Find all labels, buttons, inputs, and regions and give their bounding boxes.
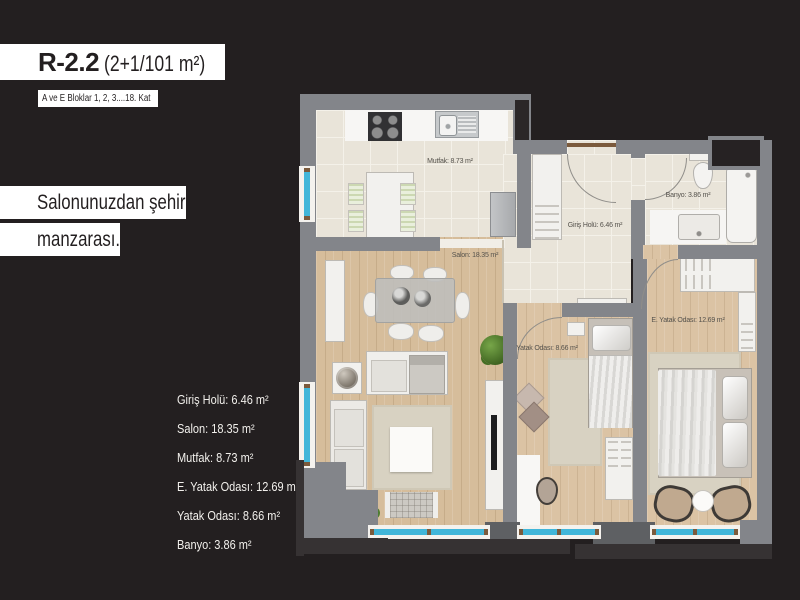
area-salon: Salon: 18.35 m² xyxy=(177,415,255,444)
area-yatak-odasi: Yatak Odası: 8.66 m² xyxy=(177,502,280,531)
wardrobe-rail xyxy=(685,275,713,289)
shaft xyxy=(708,136,764,170)
kitchen-chair xyxy=(400,183,416,205)
tagline-line1: Salonunuzdan şehir xyxy=(0,186,186,219)
tv xyxy=(491,415,497,470)
sofa-cushion xyxy=(371,360,407,392)
bathroom-vanity xyxy=(650,210,726,244)
dining-chair xyxy=(418,325,444,342)
wardrobe-shelves xyxy=(608,441,618,467)
master-bed-duvet xyxy=(658,370,716,476)
kitchen-chair xyxy=(348,183,364,205)
bedroom-wardrobe xyxy=(605,437,633,500)
coffee-table xyxy=(390,427,432,472)
kitchen-sink xyxy=(435,111,479,138)
window xyxy=(299,166,315,222)
window-glass xyxy=(304,168,310,220)
hall-salon-divider xyxy=(502,240,504,303)
tagline-line1-text: Salonunuzdan şehir xyxy=(37,186,186,219)
wall xyxy=(740,520,772,545)
wall xyxy=(517,154,531,248)
dining-chair xyxy=(388,323,414,340)
room-label-salon: Salon: 18.35 m² xyxy=(415,252,535,259)
sofa xyxy=(366,351,448,395)
plan-shadow xyxy=(330,539,570,554)
window xyxy=(517,525,601,539)
sink-drainer xyxy=(458,116,476,133)
decor-sphere xyxy=(336,367,358,389)
area-mutfak: Mutfak: 8.73 m² xyxy=(177,444,253,473)
plan-spec: (2+1/101 m²) xyxy=(104,46,205,82)
wardrobe-shelves xyxy=(621,441,631,467)
kitchen-chair xyxy=(348,210,364,232)
master-bedroom-door-opening xyxy=(643,245,678,259)
room-label-e-yatak-odasi: E. Yatak Odası: 12.69 m² xyxy=(628,317,748,324)
kitchen-chair xyxy=(400,210,416,232)
window-glass xyxy=(370,529,488,535)
window-glass xyxy=(519,529,599,535)
blocks-floors-text: A ve E Bloklar 1, 2, 3....18. Kat xyxy=(42,90,151,107)
balcony-step xyxy=(302,490,378,542)
sideboard xyxy=(325,260,345,342)
window xyxy=(650,525,740,539)
wall xyxy=(757,140,772,542)
wall xyxy=(316,237,440,251)
bed-pillow xyxy=(722,422,748,468)
bed-duvet xyxy=(589,355,632,428)
wall xyxy=(593,522,655,544)
plan-title: R-2.2 (2+1/101 m²) xyxy=(0,44,225,80)
nightstand xyxy=(567,322,585,336)
bed-pillow xyxy=(722,376,748,420)
room-label-yatak-odasi: Yatak Odası: 8.66 m² xyxy=(487,345,607,352)
side-table xyxy=(332,362,362,394)
corner-sofa-cushion xyxy=(334,409,364,447)
wall xyxy=(503,303,517,544)
bathtub xyxy=(726,165,757,243)
table-bowl xyxy=(414,290,431,307)
stove xyxy=(368,112,402,141)
tagline-line2: manzarası. xyxy=(0,223,120,256)
room-label-giris-holu: Giriş Holü: 6.46 m² xyxy=(535,222,655,229)
table-bowl xyxy=(392,287,410,305)
page: { "background": "#231f20", "header": { "… xyxy=(0,0,800,600)
bedroom-bed xyxy=(588,318,633,428)
plan-shadow xyxy=(575,544,772,559)
room-label-mutfak: Mutfak: 8.73 m² xyxy=(390,158,510,165)
sofa-chaise xyxy=(409,355,445,394)
area-e-yatak-odasi: E. Yatak Odası: 12.69 m² xyxy=(177,473,299,502)
window-glass xyxy=(652,529,738,535)
area-banyo: Banyo: 3.86 m² xyxy=(177,531,252,560)
closet-shelves xyxy=(535,201,559,239)
entrance-door-leaf xyxy=(567,143,616,147)
tagline-line2-text: manzarası. xyxy=(37,223,120,256)
plan-code: R-2.2 xyxy=(38,47,99,77)
window xyxy=(299,382,315,468)
wardrobe-rail xyxy=(685,257,713,271)
round-table xyxy=(692,490,714,512)
window xyxy=(368,525,490,539)
room-label-banyo: Banyo: 3.86 m² xyxy=(628,192,748,199)
area-giris-holu: Giriş Holü: 6.46 m² xyxy=(177,386,269,415)
ottoman-bench xyxy=(385,492,438,518)
sink-bowl xyxy=(439,115,457,136)
kitchen-threshold xyxy=(440,239,505,248)
dining-chair xyxy=(455,292,470,319)
wall xyxy=(306,94,521,110)
fridge xyxy=(490,192,516,237)
duct xyxy=(515,100,529,140)
window-glass xyxy=(304,384,310,466)
bedroom-door-opening xyxy=(517,303,562,317)
floor-plan: Mutfak: 8.73 m² Giriş Holü: 6.46 m² Bany… xyxy=(296,88,776,566)
blocks-floors-badge: A ve E Bloklar 1, 2, 3....18. Kat xyxy=(38,90,158,107)
bathroom-sink xyxy=(678,214,720,240)
